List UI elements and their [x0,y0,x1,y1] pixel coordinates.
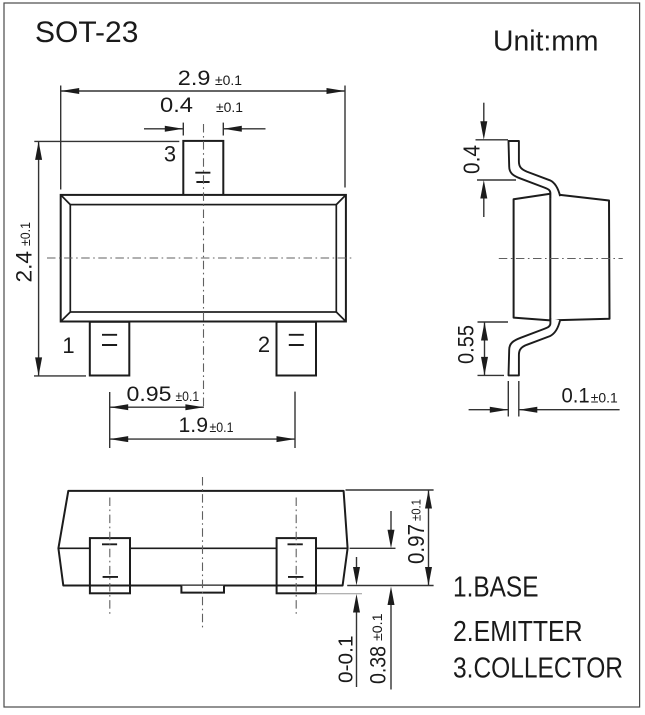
svg-text:0.1: 0.1 [562,384,590,407]
svg-text:±0.1: ±0.1 [215,73,242,88]
svg-text:2.4: 2.4 [12,251,37,283]
svg-text:1.BASE: 1.BASE [453,572,539,604]
svg-text:±0.1: ±0.1 [369,613,385,641]
svg-text:±0.1: ±0.1 [176,389,200,404]
svg-text:±0.1: ±0.1 [210,420,234,435]
svg-text:Unit:mm: Unit:mm [493,25,599,57]
svg-text:2: 2 [258,332,270,357]
svg-text:0.38: 0.38 [366,646,391,684]
svg-text:1: 1 [62,333,74,358]
svg-text:SOT-23: SOT-23 [35,16,138,49]
svg-text:0.55: 0.55 [454,325,479,364]
svg-text:±0.1: ±0.1 [409,499,424,521]
svg-text:0.97: 0.97 [403,524,429,564]
svg-text:±0.1: ±0.1 [18,222,33,246]
svg-text:±0.1: ±0.1 [216,100,243,115]
svg-text:3: 3 [164,142,176,167]
svg-text:3.COLLECTOR: 3.COLLECTOR [453,653,623,685]
svg-text:2.9: 2.9 [178,67,211,90]
svg-text:0-0.1: 0-0.1 [336,636,358,684]
svg-text:0.95: 0.95 [127,383,172,406]
svg-text:2.EMITTER: 2.EMITTER [453,616,583,648]
svg-text:0.4: 0.4 [160,94,193,117]
svg-text:0.4: 0.4 [459,145,485,174]
svg-text:±0.1: ±0.1 [591,390,618,405]
svg-text:1.9: 1.9 [179,414,209,437]
